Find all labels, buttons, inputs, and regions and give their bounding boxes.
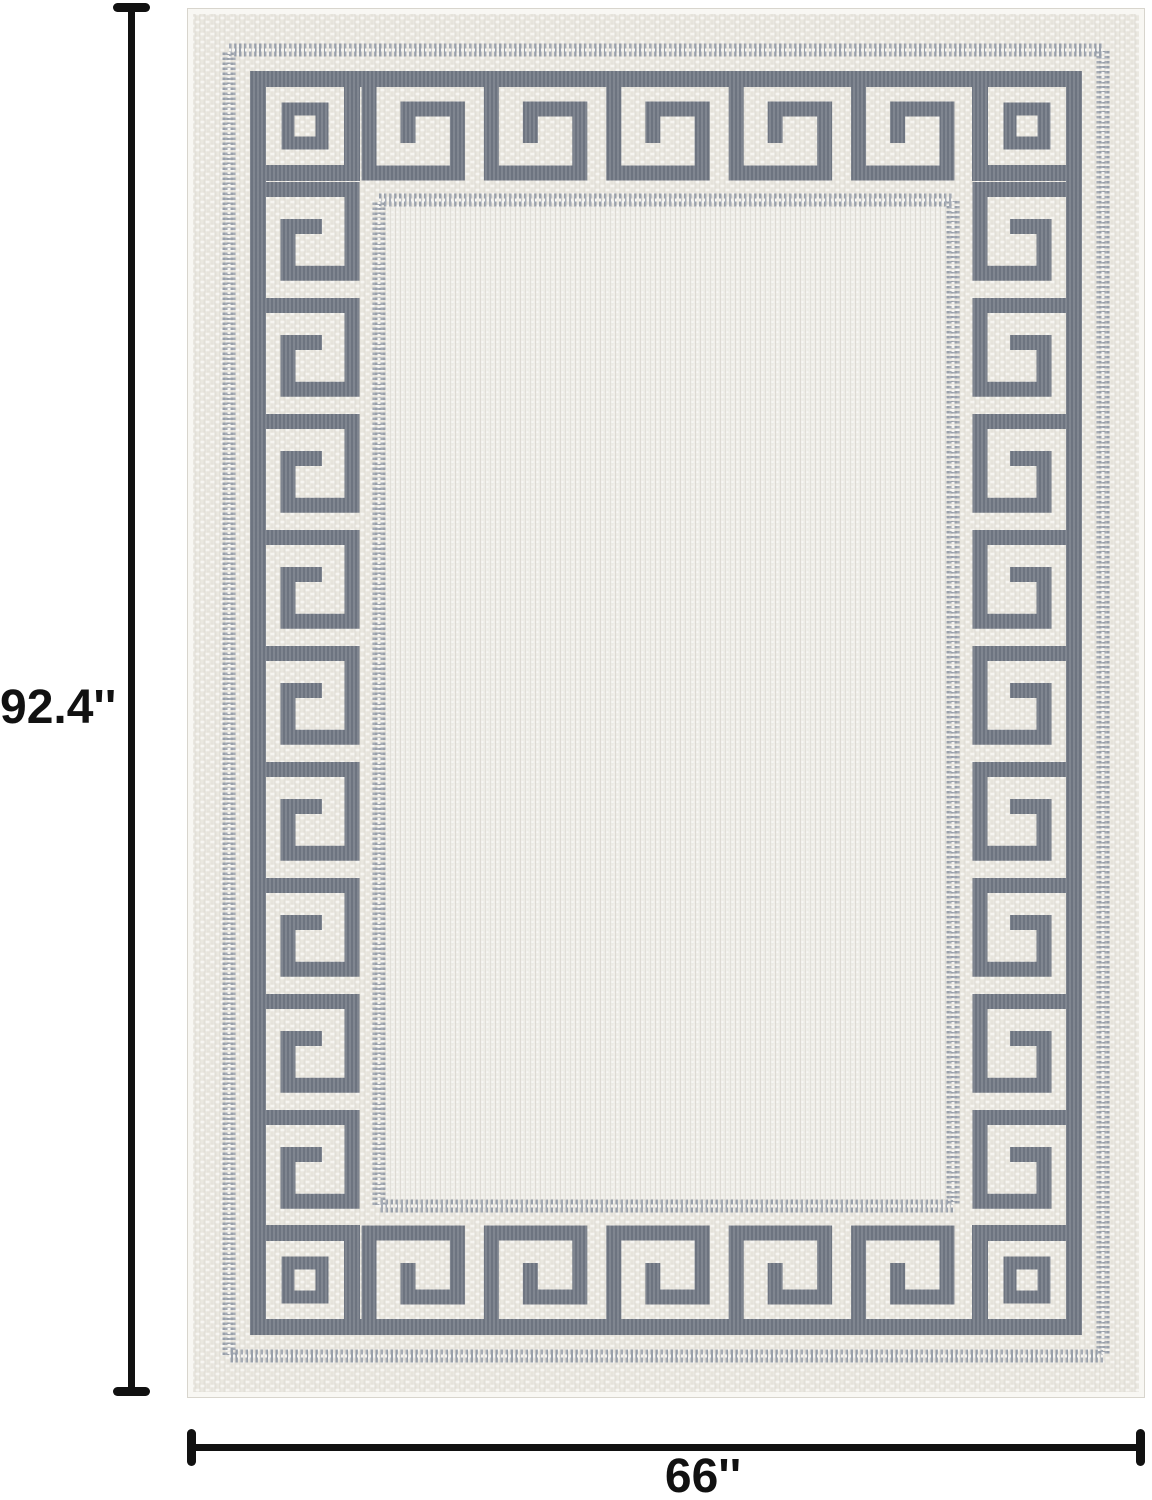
product-dimension-image: 92.4'' 66'' — [0, 0, 1152, 1500]
width-dimension-label: 66'' — [583, 1453, 823, 1500]
height-dimension-line — [118, 8, 146, 1392]
rug-weave-overlay — [193, 14, 1139, 1392]
rug-image — [187, 8, 1145, 1398]
rug-figure — [0, 0, 1152, 1500]
height-dimension-label: 92.4'' — [0, 684, 112, 732]
